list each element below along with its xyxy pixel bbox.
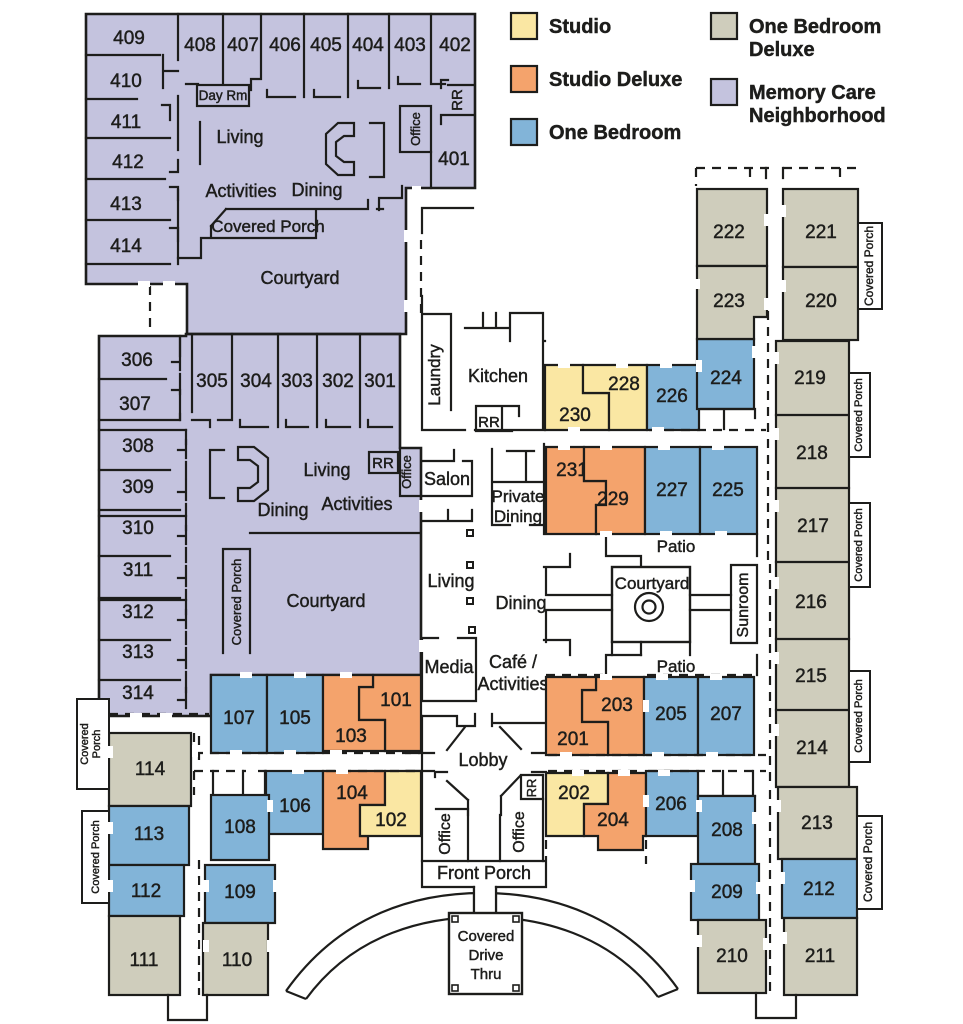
svg-text:218: 218 [796, 443, 828, 464]
svg-text:225: 225 [712, 480, 744, 501]
svg-text:307: 307 [119, 394, 151, 415]
svg-text:Covered Porch: Covered Porch [90, 820, 102, 893]
svg-text:Office: Office [437, 813, 454, 855]
svg-text:One Bedroom: One Bedroom [549, 122, 681, 144]
svg-text:221: 221 [805, 222, 837, 243]
svg-text:226: 226 [656, 386, 688, 407]
svg-text:103: 103 [335, 726, 367, 747]
svg-text:Covered Porch: Covered Porch [853, 508, 865, 581]
svg-text:409: 409 [113, 28, 145, 49]
svg-text:113: 113 [134, 824, 164, 845]
svg-text:207: 207 [710, 704, 742, 725]
svg-text:Dining: Dining [291, 180, 342, 200]
svg-text:310: 310 [122, 518, 154, 539]
svg-text:Neighborhood: Neighborhood [749, 105, 886, 127]
svg-text:Office: Office [399, 455, 414, 489]
svg-text:406: 406 [269, 35, 301, 56]
svg-text:411: 411 [111, 112, 141, 133]
svg-text:Thru: Thru [471, 966, 502, 983]
svg-text:102: 102 [375, 810, 407, 831]
svg-text:Courtyard: Courtyard [260, 268, 339, 288]
svg-text:203: 203 [601, 695, 633, 716]
svg-text:229: 229 [597, 489, 629, 510]
svg-text:224: 224 [710, 368, 742, 389]
svg-text:402: 402 [439, 35, 471, 56]
svg-text:313: 313 [122, 642, 154, 663]
svg-text:112: 112 [131, 881, 161, 902]
svg-text:Patio: Patio [657, 657, 696, 676]
svg-text:304: 304 [240, 371, 272, 392]
svg-text:Covered Porch: Covered Porch [861, 822, 875, 902]
svg-text:206: 206 [655, 794, 687, 815]
svg-text:216: 216 [795, 592, 827, 613]
svg-text:Covered Porch: Covered Porch [229, 559, 244, 646]
svg-text:Private: Private [492, 487, 545, 506]
svg-text:Covered Porch: Covered Porch [862, 226, 876, 306]
svg-text:Courtyard: Courtyard [286, 591, 365, 611]
svg-text:412: 412 [112, 152, 144, 173]
svg-text:Covered: Covered [79, 723, 91, 765]
svg-text:230: 230 [559, 405, 591, 426]
svg-text:Living: Living [303, 460, 350, 480]
svg-text:311: 311 [123, 560, 153, 581]
svg-text:Studio: Studio [549, 16, 611, 38]
svg-text:Day Rm: Day Rm [199, 88, 248, 103]
svg-text:Covered: Covered [458, 928, 515, 945]
svg-text:Patio: Patio [657, 537, 696, 556]
svg-text:212: 212 [803, 879, 835, 900]
svg-text:312: 312 [122, 602, 154, 623]
svg-text:Office: Office [408, 112, 423, 146]
svg-text:Laundry: Laundry [425, 344, 444, 406]
svg-text:209: 209 [711, 882, 743, 903]
svg-text:407: 407 [227, 35, 259, 56]
svg-text:223: 223 [713, 291, 745, 312]
svg-text:227: 227 [656, 480, 688, 501]
svg-text:403: 403 [394, 35, 426, 56]
svg-text:Memory Care: Memory Care [749, 82, 876, 104]
svg-text:RR: RR [372, 455, 394, 472]
svg-text:111: 111 [130, 950, 159, 971]
svg-text:Dining: Dining [257, 500, 308, 520]
svg-text:Covered Porch: Covered Porch [853, 679, 865, 752]
svg-text:Café /: Café / [489, 652, 537, 672]
svg-text:108: 108 [224, 817, 256, 838]
svg-text:106: 106 [279, 796, 311, 817]
svg-text:Media: Media [424, 657, 474, 677]
svg-text:301: 301 [364, 371, 396, 392]
svg-text:220: 220 [805, 291, 837, 312]
svg-text:105: 105 [279, 708, 311, 729]
svg-text:210: 210 [716, 946, 748, 967]
svg-text:109: 109 [224, 882, 256, 903]
svg-text:205: 205 [655, 704, 687, 725]
svg-text:Office: Office [511, 811, 528, 853]
svg-text:405: 405 [310, 35, 342, 56]
svg-text:Activities: Activities [477, 674, 548, 694]
svg-text:305: 305 [196, 371, 228, 392]
svg-text:302: 302 [322, 371, 354, 392]
svg-text:202: 202 [558, 783, 590, 804]
svg-text:Sunroom: Sunroom [735, 573, 752, 638]
svg-text:Living: Living [216, 127, 263, 147]
svg-text:201: 201 [557, 729, 589, 750]
svg-text:Courtyard: Courtyard [615, 574, 690, 593]
svg-text:Activities: Activities [321, 494, 392, 514]
svg-text:401: 401 [438, 149, 470, 170]
svg-text:214: 214 [796, 738, 828, 759]
svg-text:413: 413 [110, 194, 142, 215]
svg-text:114: 114 [135, 759, 166, 780]
svg-text:314: 314 [122, 683, 154, 704]
svg-text:Porch: Porch [91, 730, 103, 759]
svg-text:104: 104 [336, 783, 368, 804]
svg-text:Dining: Dining [494, 507, 542, 526]
svg-text:101: 101 [380, 690, 412, 711]
svg-text:222: 222 [713, 222, 745, 243]
svg-text:Living: Living [427, 571, 474, 591]
svg-text:Deluxe: Deluxe [749, 39, 815, 61]
svg-text:408: 408 [184, 35, 216, 56]
svg-text:211: 211 [805, 946, 835, 967]
svg-text:Covered Porch: Covered Porch [853, 378, 865, 451]
svg-text:Activities: Activities [205, 181, 276, 201]
svg-text:One Bedroom: One Bedroom [749, 16, 881, 38]
svg-text:Lobby: Lobby [458, 750, 507, 770]
svg-text:110: 110 [222, 950, 252, 971]
svg-text:414: 414 [110, 236, 142, 257]
svg-text:Covered Porch: Covered Porch [211, 217, 324, 236]
svg-text:Kitchen: Kitchen [468, 366, 528, 386]
svg-text:107: 107 [223, 708, 255, 729]
svg-text:309: 309 [122, 477, 154, 498]
svg-text:RR: RR [524, 779, 539, 798]
svg-text:404: 404 [352, 35, 384, 56]
svg-text:Dining: Dining [495, 593, 546, 613]
svg-text:Drive: Drive [468, 947, 503, 964]
svg-text:Salon: Salon [424, 469, 470, 489]
svg-text:213: 213 [801, 813, 833, 834]
svg-text:306: 306 [121, 350, 153, 371]
svg-text:208: 208 [711, 820, 743, 841]
svg-text:410: 410 [110, 71, 142, 92]
svg-text:Front Porch: Front Porch [437, 863, 531, 883]
svg-text:Studio Deluxe: Studio Deluxe [549, 69, 682, 91]
svg-text:RR: RR [449, 89, 466, 111]
svg-text:219: 219 [794, 368, 826, 389]
svg-text:217: 217 [797, 516, 829, 537]
svg-text:215: 215 [795, 666, 827, 687]
svg-text:228: 228 [608, 374, 640, 395]
svg-text:303: 303 [281, 371, 313, 392]
svg-text:RR: RR [478, 414, 500, 431]
svg-text:308: 308 [122, 436, 154, 457]
svg-text:204: 204 [597, 810, 629, 831]
